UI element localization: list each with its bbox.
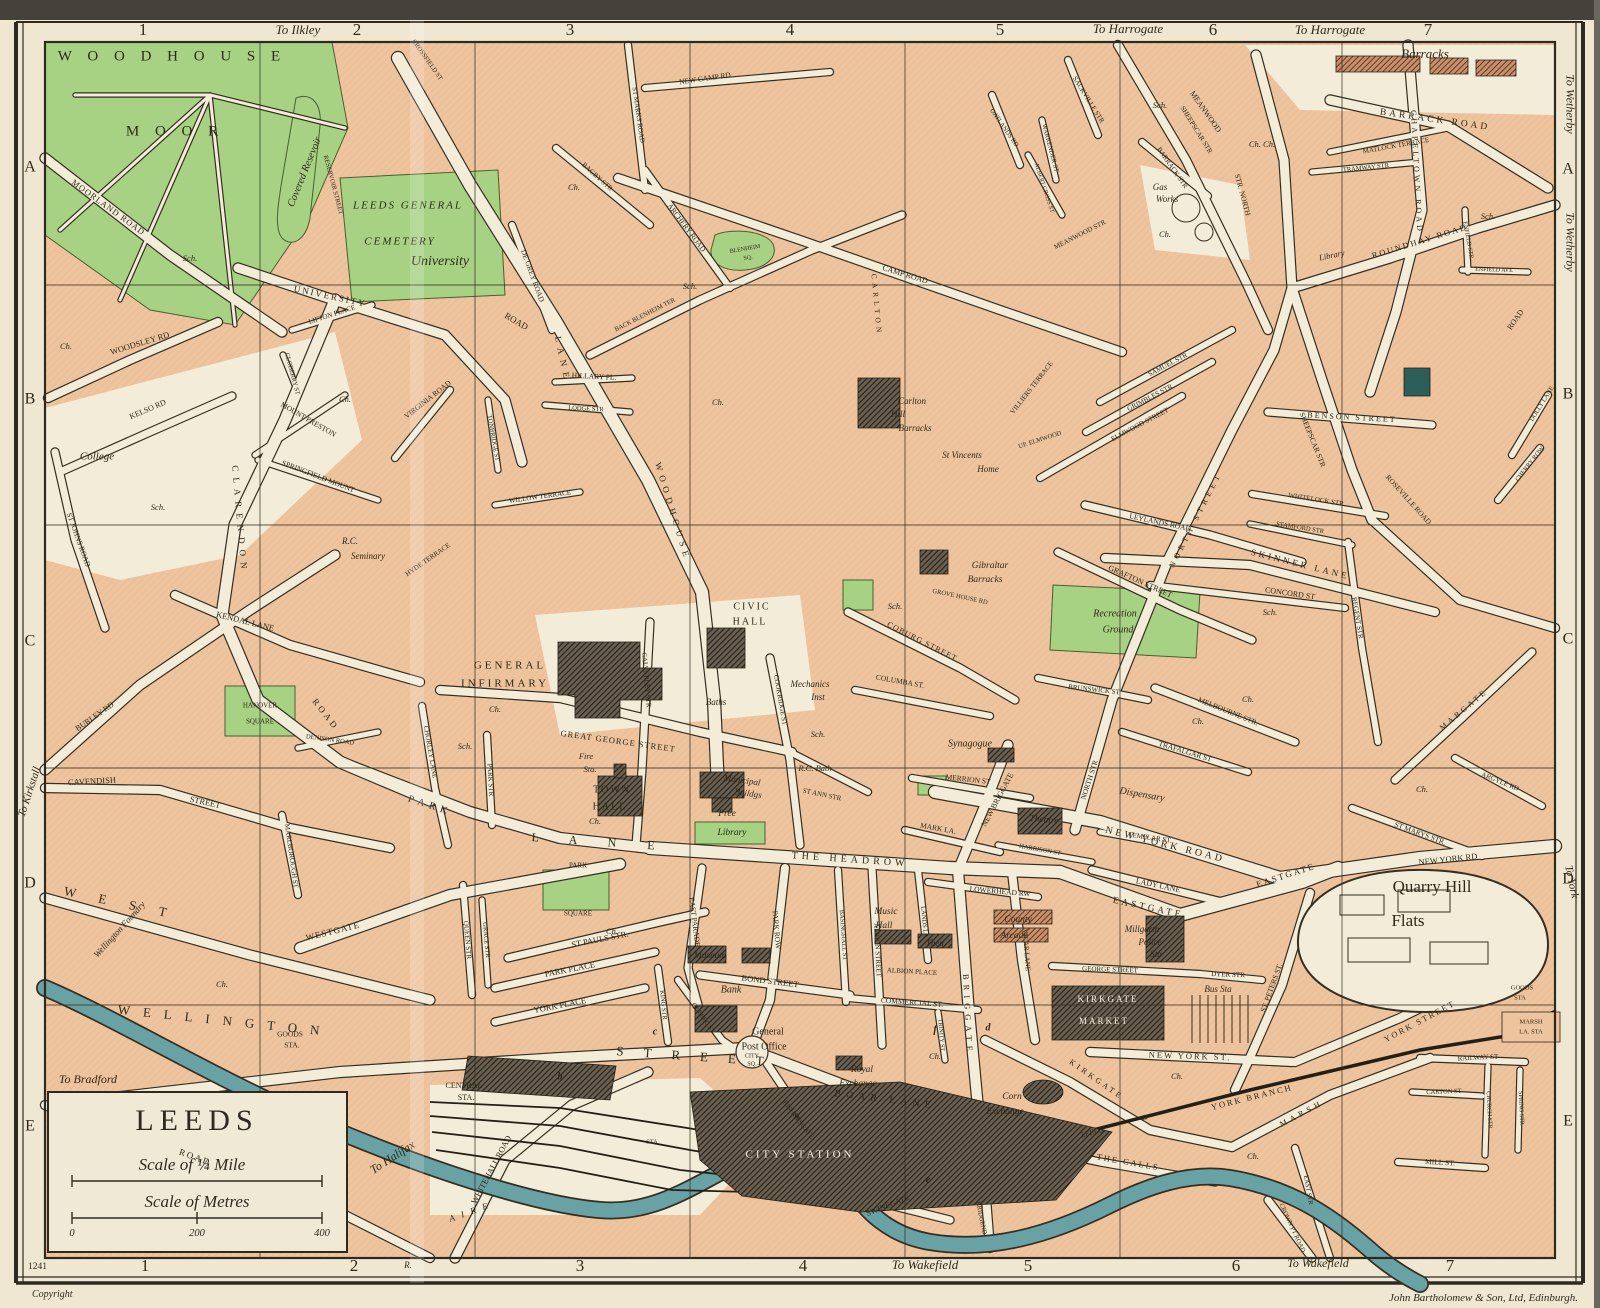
map-label: Ch. xyxy=(1416,784,1428,794)
map-label: General xyxy=(752,1026,784,1037)
map-label: St Vincents xyxy=(942,450,982,460)
map-label: LA. STA xyxy=(1519,1028,1543,1035)
map-title: LEEDS xyxy=(135,1104,258,1137)
grid-row-letter: E xyxy=(1563,1113,1573,1130)
map-label: Sch. xyxy=(683,281,697,291)
map-label: Ch. xyxy=(1247,1151,1259,1161)
map-label: Home xyxy=(976,464,999,474)
building xyxy=(1404,368,1430,396)
map-label: Ch. xyxy=(712,397,724,407)
map-label: Exchange xyxy=(838,1079,876,1089)
map-label: Ch. xyxy=(568,182,580,192)
metre-tick-200: 200 xyxy=(189,1228,206,1239)
building xyxy=(858,378,900,428)
map-label: MARSH xyxy=(1519,1018,1542,1025)
map-label: Recreation xyxy=(1092,608,1137,619)
map-label: To Wakefield xyxy=(892,1257,959,1272)
right-edge-band xyxy=(1594,0,1600,1308)
map-label: Library xyxy=(716,828,747,838)
grid-column-number: 2 xyxy=(350,1256,359,1275)
map-label: INFIRMARY xyxy=(461,678,549,690)
map-label: To Bradford xyxy=(59,1072,118,1086)
map-label: GENERAL xyxy=(474,660,546,672)
map-label: HALL xyxy=(733,616,768,627)
map-label: DYER STR xyxy=(1211,970,1245,979)
building xyxy=(707,628,745,668)
grid-row-letter: B xyxy=(1563,386,1574,403)
map-label: Gas xyxy=(1153,182,1168,192)
map-label: STA xyxy=(646,1138,658,1145)
top-edge-band xyxy=(0,0,1600,20)
map-label: Music xyxy=(873,907,898,917)
gas-works-tank xyxy=(1195,223,1213,241)
map-label: Ch. xyxy=(216,979,228,989)
map-label: Post Office xyxy=(741,1041,787,1052)
map-label: Gibraltar xyxy=(972,561,1009,571)
map-label: b xyxy=(558,1071,563,1082)
map-label: CEMETERY xyxy=(364,236,435,248)
leeds-map-canvas: LEEDS Scale of ¼ Mile Scale of Metres 0 … xyxy=(0,0,1600,1308)
map-label: To Wakefield xyxy=(1287,1256,1349,1270)
map-label: Sch. xyxy=(811,729,825,739)
map-label: Sch. xyxy=(1153,100,1167,110)
building xyxy=(614,764,626,778)
map-label: Barracks xyxy=(968,575,1003,585)
map-label: Ch. xyxy=(1171,1071,1183,1081)
building xyxy=(742,948,770,963)
map-label: Ch. xyxy=(339,394,351,404)
grid-row-letter: D xyxy=(1562,871,1574,888)
building xyxy=(1502,1012,1560,1042)
map-label: Flats xyxy=(1391,911,1424,930)
map-label: Baths xyxy=(706,697,727,707)
map-label: Ch. xyxy=(589,816,601,826)
grid-column-number: 6 xyxy=(1209,20,1218,39)
map-page: LEEDS Scale of ¼ Mile Scale of Metres 0 … xyxy=(0,0,1600,1308)
map-label: Fire xyxy=(578,751,594,761)
building xyxy=(920,550,948,574)
grid-column-number: 4 xyxy=(799,1256,808,1275)
map-label: To Wetherby xyxy=(1563,74,1577,134)
map-label: Sch. xyxy=(458,741,472,751)
map-label: Bus Sta xyxy=(1204,984,1232,994)
grid-row-letter: C xyxy=(25,633,36,650)
map-label: Sch. xyxy=(1263,607,1277,617)
grid-column-number: 2 xyxy=(353,20,362,39)
map-label: MARKET xyxy=(1079,1016,1129,1026)
map-label: Museum xyxy=(693,951,726,961)
title-block: LEEDS Scale of ¼ Mile Scale of Metres 0 … xyxy=(48,1092,347,1252)
map-label: HALL xyxy=(593,801,628,812)
grid-column-number: 5 xyxy=(1024,1256,1033,1275)
grid-row-letter: C xyxy=(1563,631,1574,648)
map-label: STA xyxy=(1514,994,1526,1001)
corn-exchange-building xyxy=(1023,1080,1063,1104)
imprint-label: John Bartholomew & Son, Ltd, Edinburgh. xyxy=(1389,1292,1578,1304)
map-label: Carlton xyxy=(898,396,927,406)
map-label: MILL ST. xyxy=(1425,1157,1456,1168)
map-label: Sta xyxy=(1150,949,1162,959)
grid-column-number: 1 xyxy=(141,1256,150,1275)
park xyxy=(1050,585,1200,658)
map-label: Ch. xyxy=(60,341,72,351)
map-label: Ch. xyxy=(1242,694,1254,704)
map-label: PARK xyxy=(569,862,587,870)
map-label: CENTRAL xyxy=(446,1081,483,1090)
map-label: Ground xyxy=(1103,624,1135,635)
metre-tick-400: 400 xyxy=(314,1228,331,1239)
grid-row-letter: E xyxy=(25,1118,35,1135)
map-label: Barracks xyxy=(899,423,932,433)
map-label: Corn xyxy=(1002,1092,1022,1102)
map-label: To Harrogate xyxy=(1093,21,1163,36)
map-label: a xyxy=(795,1110,800,1121)
map-label: Exchange xyxy=(985,1107,1023,1117)
map-label: W O O D H O U S E xyxy=(58,48,286,64)
grid-row-letter: B xyxy=(25,391,36,408)
map-label: Bank xyxy=(721,984,742,995)
map-label: CITY STATION xyxy=(746,1149,855,1161)
map-label: SQUARE xyxy=(564,910,592,918)
map-label: M O O R xyxy=(126,123,224,139)
map-label: Free xyxy=(717,809,736,819)
map-label: Mechanics xyxy=(790,679,830,689)
fold-line xyxy=(410,20,424,1283)
map-label: CIVIC xyxy=(733,601,770,612)
map-label: c xyxy=(653,1026,658,1037)
map-label: Quarry Hill xyxy=(1393,877,1472,896)
map-label: TOWN xyxy=(593,784,631,795)
map-label: SQUARE xyxy=(246,718,274,726)
park xyxy=(843,580,873,610)
map-label: KIRKGATE xyxy=(1078,994,1139,1004)
plate-number: 1241 xyxy=(28,1262,47,1272)
map-label: Hill xyxy=(890,409,906,419)
copyright-label: Copyright xyxy=(32,1289,73,1300)
building xyxy=(988,748,1014,762)
map-label: Ch. xyxy=(489,704,501,714)
map-label: Ch. xyxy=(1159,229,1171,239)
metre-tick-0: 0 xyxy=(69,1228,75,1239)
grid-column-number: 4 xyxy=(786,20,795,39)
map-label: To Harrogate xyxy=(1295,22,1365,37)
map-label: Sch. xyxy=(888,601,902,611)
map-label: Seminary xyxy=(351,551,385,561)
grid-row-letter: A xyxy=(1562,161,1574,178)
map-label: Barracks xyxy=(1401,46,1449,61)
map-label: R.C. xyxy=(341,536,358,546)
map-label: R.C. Bath xyxy=(797,763,831,773)
map-label: Ch. xyxy=(929,1051,941,1061)
map-label: STA. xyxy=(458,1093,474,1102)
map-label: Inst xyxy=(810,692,825,702)
map-label: To Ilkley xyxy=(276,22,321,37)
grid-column-number: 1 xyxy=(139,20,148,39)
map-label: LEEDS GENERAL xyxy=(352,200,463,212)
scale-metres-label: Scale of Metres xyxy=(144,1192,249,1211)
map-label: Royal xyxy=(850,1065,874,1075)
map-label: Thea. xyxy=(926,938,946,948)
map-label: Sch. xyxy=(151,502,165,512)
map-label: HANOVER xyxy=(243,702,278,710)
map-label: CARTON ST xyxy=(1426,1088,1462,1096)
grid-row-letter: A xyxy=(24,159,36,176)
map-label: Ch. xyxy=(1192,716,1204,726)
map-label: Sch. xyxy=(183,253,197,263)
map-label: STA. xyxy=(284,1041,300,1050)
map-label: Sta. xyxy=(584,764,597,774)
map-label: Synagogue xyxy=(948,738,992,749)
map-label: GOODS xyxy=(1511,984,1534,991)
map-label: Sch. xyxy=(1481,211,1495,221)
map-label: Ch. Ch. xyxy=(1249,139,1275,149)
grid-column-number: 6 xyxy=(1232,1256,1241,1275)
building xyxy=(1476,60,1516,76)
grid-column-number: 5 xyxy=(996,20,1005,39)
grid-column-number: 3 xyxy=(576,1256,585,1275)
map-label: College xyxy=(80,451,114,463)
map-label: County xyxy=(1004,915,1032,925)
grid-row-letter: D xyxy=(24,875,36,892)
grid-column-number: 3 xyxy=(566,20,575,39)
grid-column-number: 7 xyxy=(1446,1256,1455,1275)
map-label: e xyxy=(926,1174,931,1185)
map-label: Millgarth xyxy=(1124,924,1160,934)
map-label: Police xyxy=(1138,937,1162,947)
grid-column-number: 7 xyxy=(1424,20,1433,39)
map-label: To Wetherby xyxy=(1563,212,1577,272)
map-label: Works xyxy=(1156,194,1179,204)
